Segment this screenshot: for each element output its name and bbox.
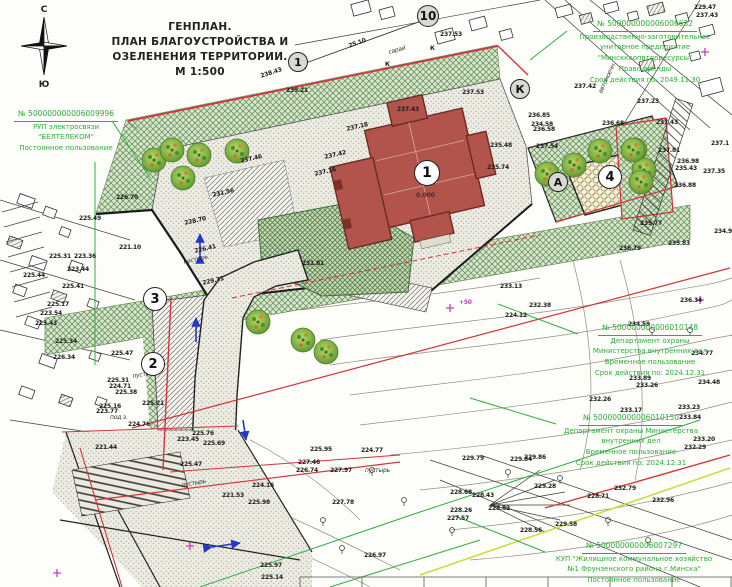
parcel-text-line: Временное пользование [570,357,730,368]
parcel-annotation-3: № 500000000006010148Департамент охраныМи… [570,322,730,379]
parcel-text-line: №1 Фрунзенского района г.Минска" [536,564,732,575]
parcel-text-line: РУП электросвязи [0,122,132,133]
parcel-number: № 500000000006010148 [598,322,702,336]
parcel-text-line: Департамент охраны [570,336,730,347]
parcel-text-line: внутренних дел [536,436,726,447]
parcel-text-line: Право аренды [560,64,730,75]
parcel-number: № 500000000006006632 [593,18,697,32]
parcel-text-line: Срок действия по: 2024.12.31 [570,368,730,379]
parcel-text-line: "БЕЛТЕЛЕКОМ" [0,132,132,143]
parcel-number: № 500000000006009996 [14,108,118,122]
parcel-text-line: Срок действия по: 2049.11.30 [560,75,730,86]
parcel-text-line: Производственно-заготовительное [560,32,730,43]
parcel-number: № 500000000006010150 [579,412,683,426]
parcel-number: № 500000000006007297 [582,540,686,554]
compass-rose: С Ю [18,6,70,92]
parcel-text-line: унитарное предприятие [560,42,730,53]
plan-title-line1: ГЕНПЛАН. [100,20,300,35]
parcel-text-line: Срок действия по: 2024.12.31 [536,458,726,469]
parcel-annotation-1: № 500000000006009996РУП электросвязи"БЕЛ… [0,108,132,154]
parcel-text-line: "Минсккоопвторресурсы" [560,53,730,64]
parcel-text-line: Постоянное пользование [0,143,132,154]
parcel-annotations-layer: № 500000000006009996РУП электросвязи"БЕЛ… [0,0,732,587]
parcel-text-line: Постоянное пользование [536,575,732,586]
parcel-text-line: Министерства внутренних дел [570,346,730,357]
plan-title-line2: ПЛАН БЛАГОУСТРОЙСТВА И [100,35,300,50]
plan-title-line3: ОЗЕЛЕНЕНИЯ ТЕРРИТОРИИ. [100,50,300,65]
parcel-text-line: Департамент охраны Министерства [536,426,726,437]
building-level-label: 0.000 [416,192,435,199]
genplan-drawing: 25.10238.43239.21сарайКК237.53229.47237.… [0,0,732,587]
parcel-annotation-2: № 500000000006006632Производственно-заго… [560,18,730,86]
parcel-annotation-4: № 500000000006010150Департамент охраны М… [536,412,726,469]
parcel-annotation-5: № 500000000006007297КУП "Жилищное коммун… [536,540,732,586]
parcel-text-line: КУП "Жилищное коммунальное хозяйство [536,554,732,565]
compass-star-icon [19,15,69,77]
plan-title: ГЕНПЛАН. ПЛАН БЛАГОУСТРОЙСТВА И ОЗЕЛЕНЕН… [100,20,300,80]
plan-scale: М 1:500 [100,65,300,80]
compass-south-label: Ю [18,81,70,90]
compass-north-label: С [18,6,70,15]
parcel-text-line: Временное пользование [536,447,726,458]
